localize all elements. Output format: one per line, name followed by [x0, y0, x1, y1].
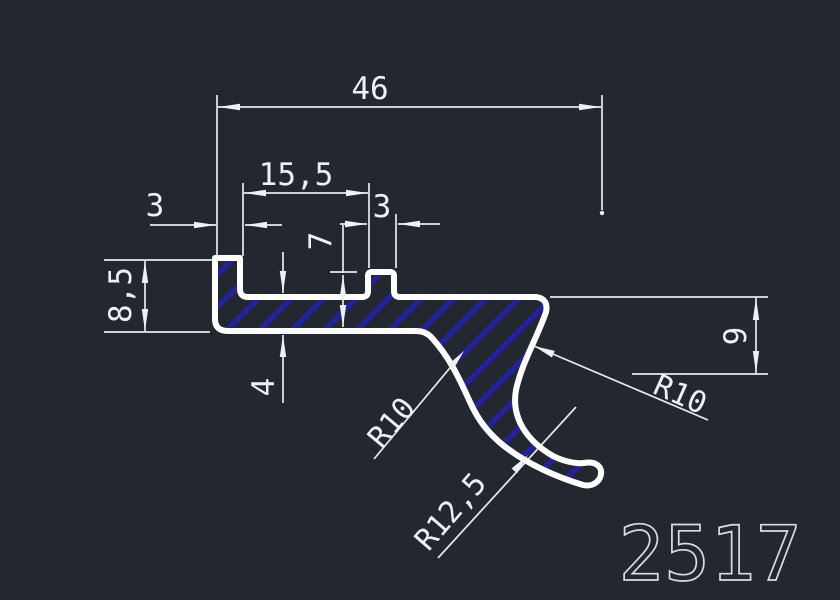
dim-hook-drop: 9 — [718, 327, 754, 346]
radius-hook-inner: R10 — [648, 368, 712, 422]
dim-left-height: 8,5 — [103, 267, 139, 323]
technical-drawing: 46 15,5 3 3 8,5 7 4 9 R10 R10 R12,5 2517 — [0, 0, 840, 600]
ext-right-edge-dot — [600, 211, 604, 215]
drawing-canvas: 46 15,5 3 3 8,5 7 4 9 R10 R10 R12,5 2517 — [0, 0, 840, 600]
dim-left-lip-width: 3 — [146, 188, 165, 224]
dim-overall-width: 46 — [351, 71, 388, 107]
dim-slot-width: 15,5 — [259, 157, 334, 193]
arrow-hook-inner — [533, 343, 555, 358]
dim-right-lip-depth: 7 — [303, 232, 339, 251]
part-number: 2517 — [618, 509, 801, 598]
dim-wall-thickness: 4 — [246, 378, 282, 397]
dim-right-lip-width: 3 — [373, 189, 392, 225]
profile-outline — [215, 258, 601, 485]
radius-bottom-fillet: R10 — [361, 391, 423, 455]
